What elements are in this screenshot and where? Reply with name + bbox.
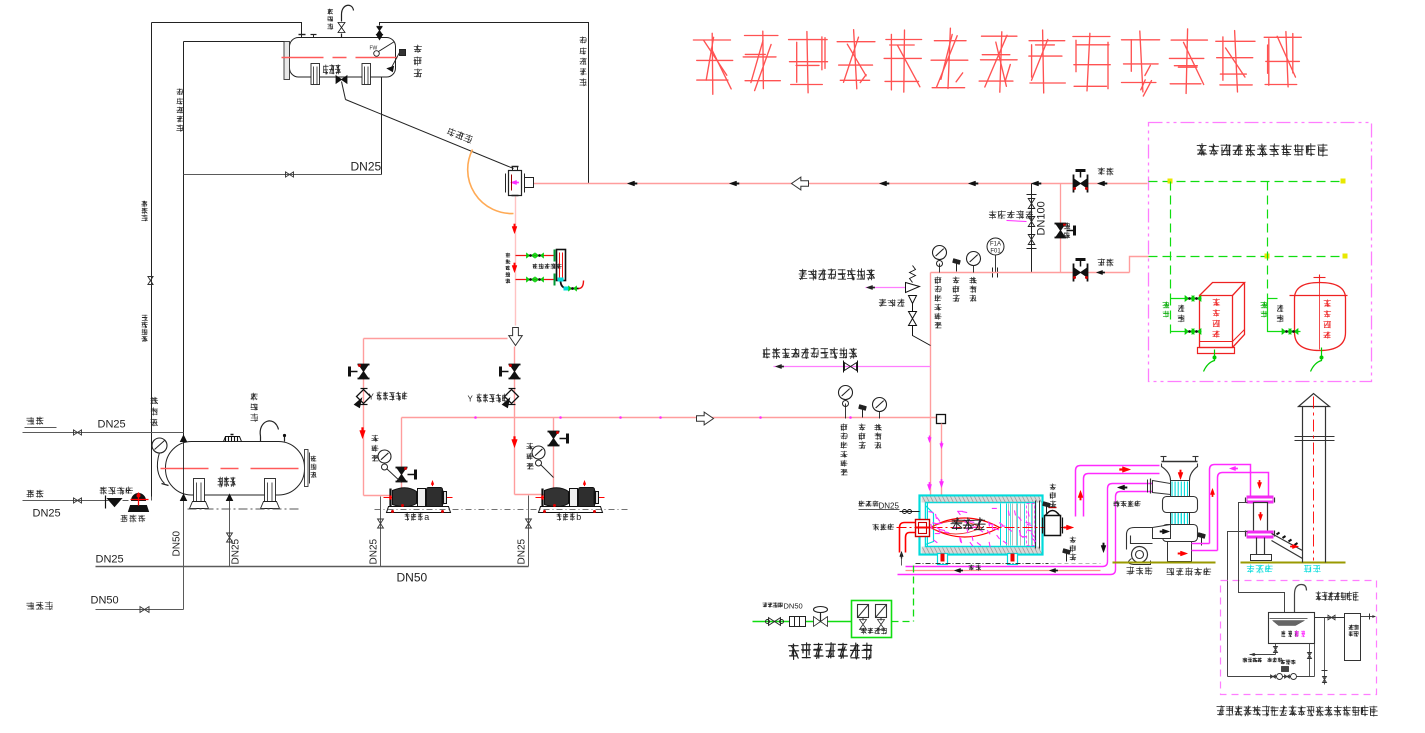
svg-text:DN50: DN50	[172, 530, 183, 556]
svg-text:b: b	[576, 512, 581, 522]
svg-text:DN25: DN25	[351, 160, 382, 174]
svg-text:a: a	[424, 512, 429, 522]
svg-text:DN50: DN50	[91, 595, 119, 607]
svg-text:DN25: DN25	[98, 419, 126, 431]
svg-text:DN25: DN25	[33, 508, 61, 520]
svg-text:DN50: DN50	[784, 602, 803, 611]
svg-text:Y: Y	[369, 393, 375, 402]
svg-text:Y: Y	[468, 395, 474, 404]
svg-text:DN25: DN25	[231, 538, 242, 564]
svg-text:DN25: DN25	[96, 554, 124, 566]
svg-text:DN100: DN100	[1036, 201, 1048, 235]
svg-text:DN25: DN25	[517, 538, 528, 564]
svg-text:F1A: F1A	[990, 242, 1001, 248]
svg-text:DN25: DN25	[369, 538, 380, 564]
svg-text:F01: F01	[990, 249, 1001, 255]
svg-text:DN50: DN50	[397, 571, 428, 585]
